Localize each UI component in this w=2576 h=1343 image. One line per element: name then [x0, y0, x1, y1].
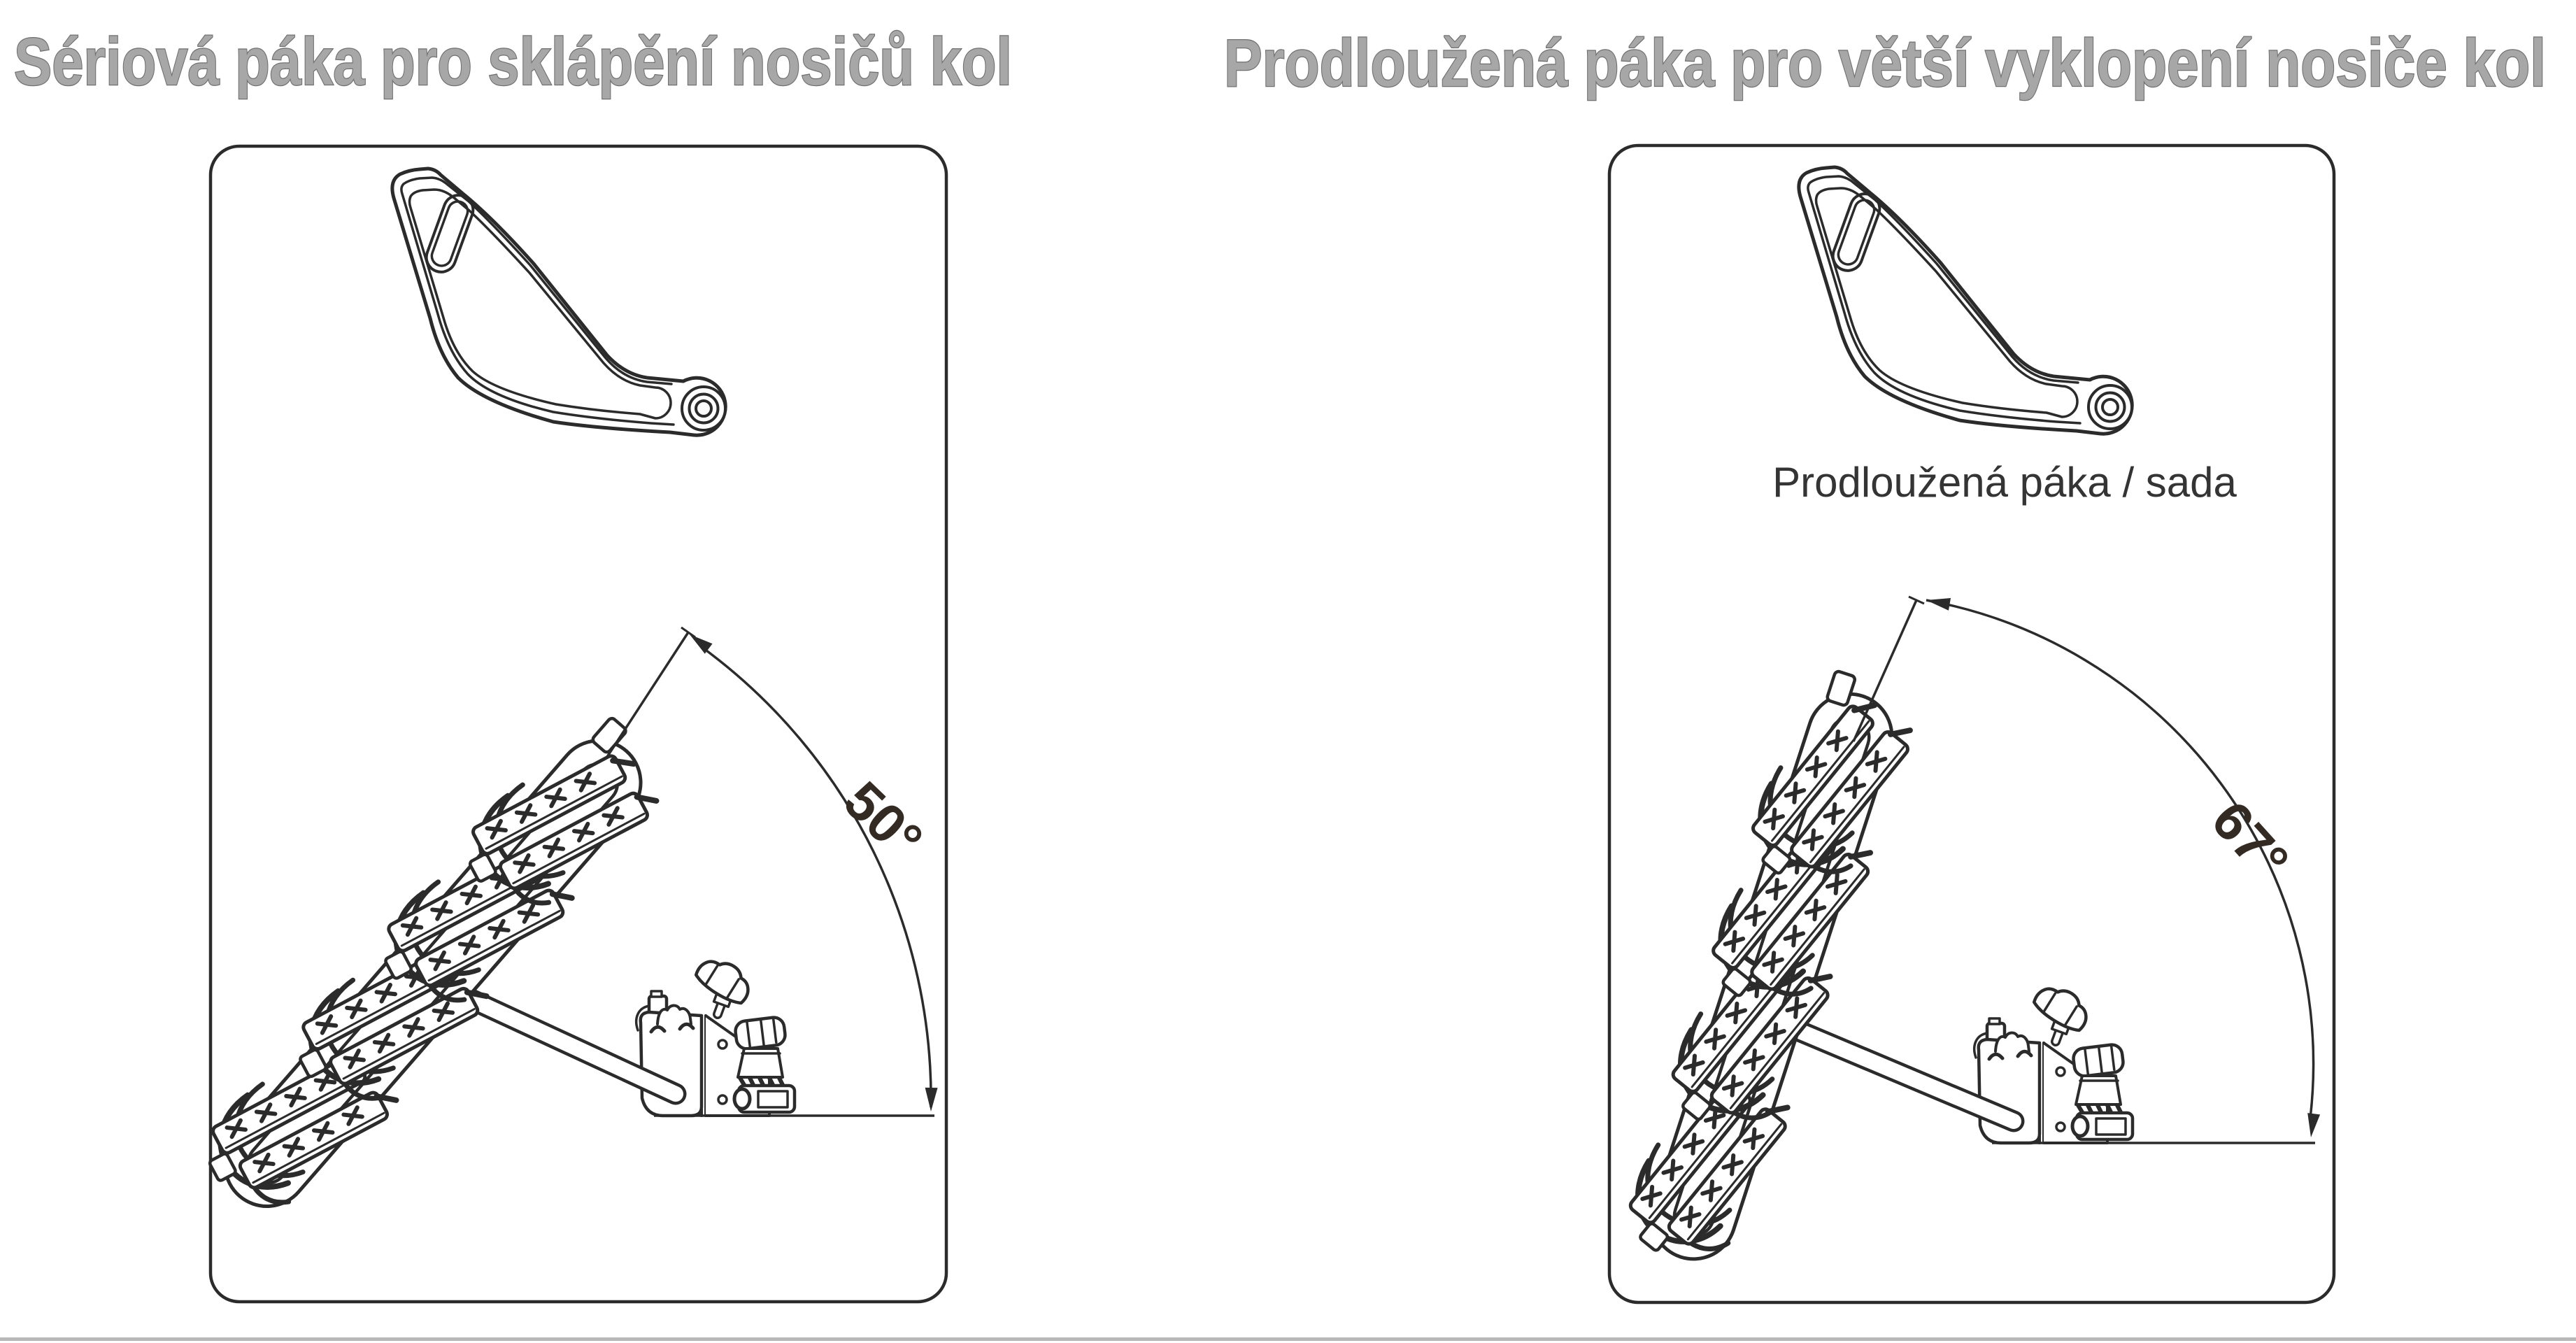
svg-text:Sériová páka pro sklápění nosi: Sériová páka pro sklápění nosičů kol — [14, 24, 1012, 99]
svg-text:Prodloužená páka / sada: Prodloužená páka / sada — [1772, 459, 2237, 506]
svg-text:Prodloužená páka pro větší vyk: Prodloužená páka pro větší vyklopení nos… — [1224, 26, 2546, 101]
